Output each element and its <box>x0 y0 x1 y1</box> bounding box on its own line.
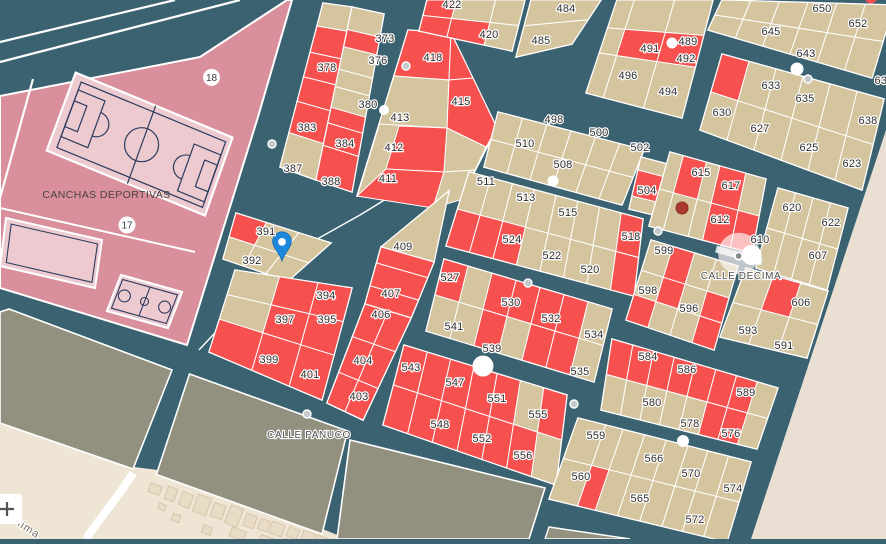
svg-text:18: 18 <box>206 73 218 84</box>
svg-text:399: 399 <box>260 354 279 366</box>
svg-text:412: 412 <box>385 142 404 154</box>
svg-text:560: 560 <box>572 471 591 483</box>
svg-text:591: 591 <box>775 340 794 352</box>
svg-text:376: 376 <box>369 55 388 67</box>
svg-text:530: 530 <box>502 297 521 309</box>
svg-text:401: 401 <box>301 369 320 381</box>
svg-text:615: 615 <box>692 167 711 179</box>
svg-text:570: 570 <box>682 468 701 480</box>
svg-text:373: 373 <box>376 33 395 45</box>
svg-text:CANCHAS DEPORTIVAS: CANCHAS DEPORTIVAS <box>42 189 170 201</box>
svg-text:422: 422 <box>443 0 462 11</box>
svg-text:406: 406 <box>372 309 391 321</box>
svg-text:502: 502 <box>631 142 650 154</box>
svg-text:559: 559 <box>587 430 606 442</box>
svg-text:403: 403 <box>350 391 369 403</box>
svg-text:630: 630 <box>713 107 732 119</box>
svg-text:606: 606 <box>792 297 811 309</box>
svg-text:407: 407 <box>382 288 401 300</box>
svg-text:633: 633 <box>762 80 781 92</box>
svg-text:552: 552 <box>473 433 492 445</box>
svg-text:484: 484 <box>557 3 576 15</box>
svg-text:620: 620 <box>783 202 802 214</box>
svg-text:513: 513 <box>517 192 536 204</box>
svg-text:380: 380 <box>359 99 378 111</box>
svg-text:491: 491 <box>641 43 660 55</box>
svg-text:652: 652 <box>849 18 868 30</box>
svg-text:539: 539 <box>483 343 502 355</box>
svg-text:565: 565 <box>631 493 650 505</box>
svg-text:17: 17 <box>121 221 133 232</box>
svg-text:596: 596 <box>680 303 699 315</box>
svg-text:CALLE PANUCO: CALLE PANUCO <box>267 430 351 441</box>
svg-text:391: 391 <box>257 226 276 238</box>
svg-text:593: 593 <box>739 325 758 337</box>
svg-text:404: 404 <box>354 355 373 367</box>
svg-text:378: 378 <box>318 62 337 74</box>
svg-text:395: 395 <box>318 314 337 326</box>
svg-text:610: 610 <box>751 234 770 246</box>
svg-text:551: 551 <box>488 393 507 405</box>
svg-text:388: 388 <box>322 176 341 188</box>
svg-text:622: 622 <box>822 217 841 229</box>
svg-text:397: 397 <box>276 314 295 326</box>
svg-text:635: 635 <box>796 93 815 105</box>
svg-text:623: 623 <box>843 158 862 170</box>
svg-text:612: 612 <box>711 214 730 226</box>
svg-text:504: 504 <box>638 185 657 197</box>
svg-text:500: 500 <box>590 127 609 139</box>
svg-text:489: 489 <box>679 36 698 48</box>
svg-text:589: 589 <box>737 387 756 399</box>
svg-text:543: 543 <box>402 362 421 374</box>
svg-text:415: 415 <box>452 96 471 108</box>
svg-text:650: 650 <box>813 3 832 15</box>
svg-text:607: 607 <box>809 250 828 262</box>
svg-text:638: 638 <box>859 115 878 127</box>
svg-text:510: 510 <box>516 138 535 150</box>
svg-text:555: 555 <box>529 409 548 421</box>
svg-text:631: 631 <box>875 75 886 87</box>
svg-text:625: 625 <box>800 142 819 154</box>
svg-text:494: 494 <box>659 86 678 98</box>
svg-text:524: 524 <box>503 234 522 246</box>
svg-text:418: 418 <box>424 52 443 64</box>
svg-text:645: 645 <box>762 26 781 38</box>
svg-text:409: 409 <box>394 241 413 253</box>
svg-text:387: 387 <box>284 163 303 175</box>
svg-text:535: 535 <box>571 366 590 378</box>
svg-text:527: 527 <box>441 272 460 284</box>
svg-text:598: 598 <box>639 285 658 297</box>
svg-text:508: 508 <box>554 159 573 171</box>
svg-text:392: 392 <box>243 255 262 267</box>
svg-text:383: 383 <box>298 122 317 134</box>
svg-text:584: 584 <box>639 351 658 363</box>
svg-text:515: 515 <box>559 207 578 219</box>
svg-text:511: 511 <box>477 176 495 188</box>
svg-text:574: 574 <box>724 483 743 495</box>
svg-text:518: 518 <box>622 231 641 243</box>
svg-text:548: 548 <box>431 419 450 431</box>
svg-text:547: 547 <box>446 377 465 389</box>
svg-text:534: 534 <box>585 329 604 341</box>
svg-text:566: 566 <box>645 453 664 465</box>
svg-text:580: 580 <box>643 397 662 409</box>
svg-text:576: 576 <box>722 428 741 440</box>
svg-text:643: 643 <box>797 48 816 60</box>
svg-text:572: 572 <box>686 514 705 526</box>
svg-text:384: 384 <box>336 138 355 150</box>
svg-text:556: 556 <box>514 450 533 462</box>
svg-text:599: 599 <box>655 245 674 257</box>
svg-text:522: 522 <box>543 250 562 262</box>
svg-text:586: 586 <box>678 364 697 376</box>
svg-text:411: 411 <box>379 173 397 185</box>
svg-text:485: 485 <box>532 35 551 47</box>
svg-text:413: 413 <box>391 112 410 124</box>
svg-text:617: 617 <box>722 180 741 192</box>
svg-text:492: 492 <box>677 53 696 65</box>
svg-text:520: 520 <box>581 264 600 276</box>
svg-text:627: 627 <box>751 123 770 135</box>
svg-text:420: 420 <box>480 29 499 41</box>
svg-text:532: 532 <box>542 313 561 325</box>
svg-text:496: 496 <box>619 70 638 82</box>
svg-text:541: 541 <box>445 321 464 333</box>
svg-text:498: 498 <box>545 114 564 126</box>
svg-text:CALLE DECIMA: CALLE DECIMA <box>701 271 782 282</box>
svg-text:394: 394 <box>317 290 336 302</box>
svg-text:578: 578 <box>681 418 700 430</box>
